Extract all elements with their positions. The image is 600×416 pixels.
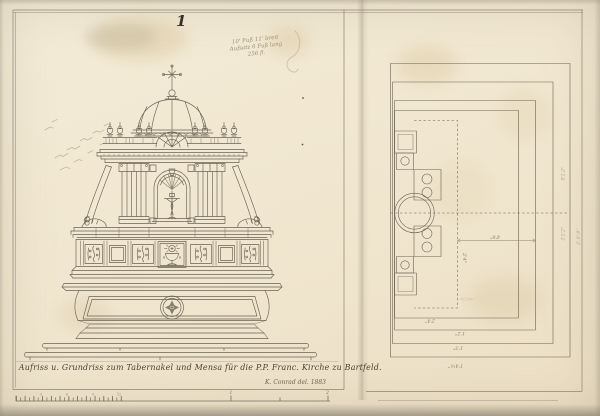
platform-steps: [16, 344, 338, 362]
scale-foot-labels: 1 2: [230, 390, 330, 396]
predella-base-molding: [70, 267, 274, 279]
plan-step-label: 1'4½'': [448, 363, 463, 370]
upper-cornice: [97, 150, 247, 163]
caption-signature: K. Conrad del. 1883: [242, 379, 326, 386]
plan-dim-depth: 2'4'': [461, 252, 467, 264]
scale-foot-label: 1: [230, 390, 233, 396]
dome: [131, 100, 213, 137]
plan-step-label: 2'4'': [425, 318, 437, 324]
cross-finial: [162, 65, 181, 99]
plan-margin-notes: 8'2.2'' 2'2'2'' 2'.9'.9'': [561, 166, 583, 246]
ink-specks: [302, 97, 304, 145]
plan-dim-width: 4'6'': [490, 234, 502, 240]
mensa-altar-table: [62, 284, 282, 339]
plan-dimension-labels: 4'6'' 2'4'' 2'4'' 1'2'' 1'3'' 1'4½'': [425, 234, 502, 370]
plan-margin-note: 2'2'2'': [561, 227, 567, 242]
scale-inch-label: 12: [117, 393, 121, 397]
scale-foot-label: 2: [325, 390, 329, 396]
plan-step-label: 1'2'': [455, 330, 466, 336]
scale-bar: 3 6 9 12 1 2: [16, 390, 330, 401]
caption-title: Aufriss u. Grundriss zum Tabernakel und …: [19, 362, 329, 372]
altar-elevation: [16, 65, 338, 362]
plan-dashed-projection: [391, 121, 569, 309]
ground-plan: [391, 64, 571, 358]
drawing-linework: 4'6'' 2'4'' 2'4'' 1'2'' 1'3'' 1'4½'' 8'2…: [0, 0, 600, 416]
plan-step-rectangles: [391, 64, 571, 358]
scale-inch-labels: 3 6 9 12: [40, 393, 121, 397]
chalice-panel: [158, 242, 186, 268]
scale-inch-label: 3: [40, 393, 42, 397]
scale-inch-label: 6: [66, 393, 68, 397]
plan-step-label: 1'3'': [453, 345, 464, 351]
scale-inch-label: 9: [92, 393, 94, 397]
cross-pattee-medallion: [165, 301, 179, 315]
plan-margin-note: 2'.9'.9'': [576, 228, 582, 246]
niche-with-crucifix: [152, 169, 192, 222]
sheet-number: 1: [176, 12, 186, 30]
scanned-drawing-sheet: 4'6'' 2'4'' 2'4'' 1'2'' 1'3'' 1'4½'' 8'2…: [0, 0, 600, 416]
plan-margin-note: 8'2.2'': [561, 166, 567, 180]
